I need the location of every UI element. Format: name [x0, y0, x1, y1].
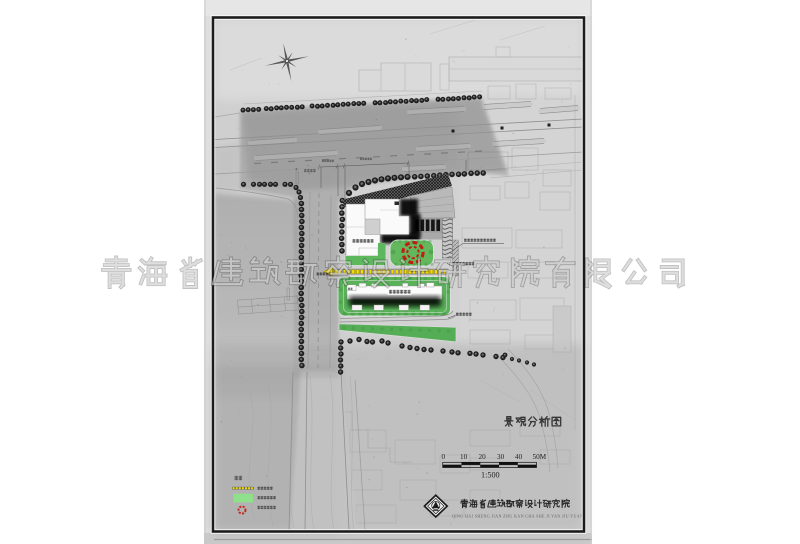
svg-text:20: 20 — [479, 453, 487, 461]
svg-text:0: 0 — [442, 453, 446, 461]
svg-text:1:500: 1:500 — [481, 471, 500, 480]
svg-text:10: 10 — [460, 453, 468, 461]
svg-text:50M: 50M — [533, 453, 547, 461]
svg-text:40: 40 — [515, 453, 523, 461]
svg-text:QING HAI SHENG JIAN ZHU KAN CH: QING HAI SHENG JIAN ZHU KAN CHA SHE JI Y… — [452, 514, 583, 519]
svg-text:30: 30 — [497, 453, 505, 461]
